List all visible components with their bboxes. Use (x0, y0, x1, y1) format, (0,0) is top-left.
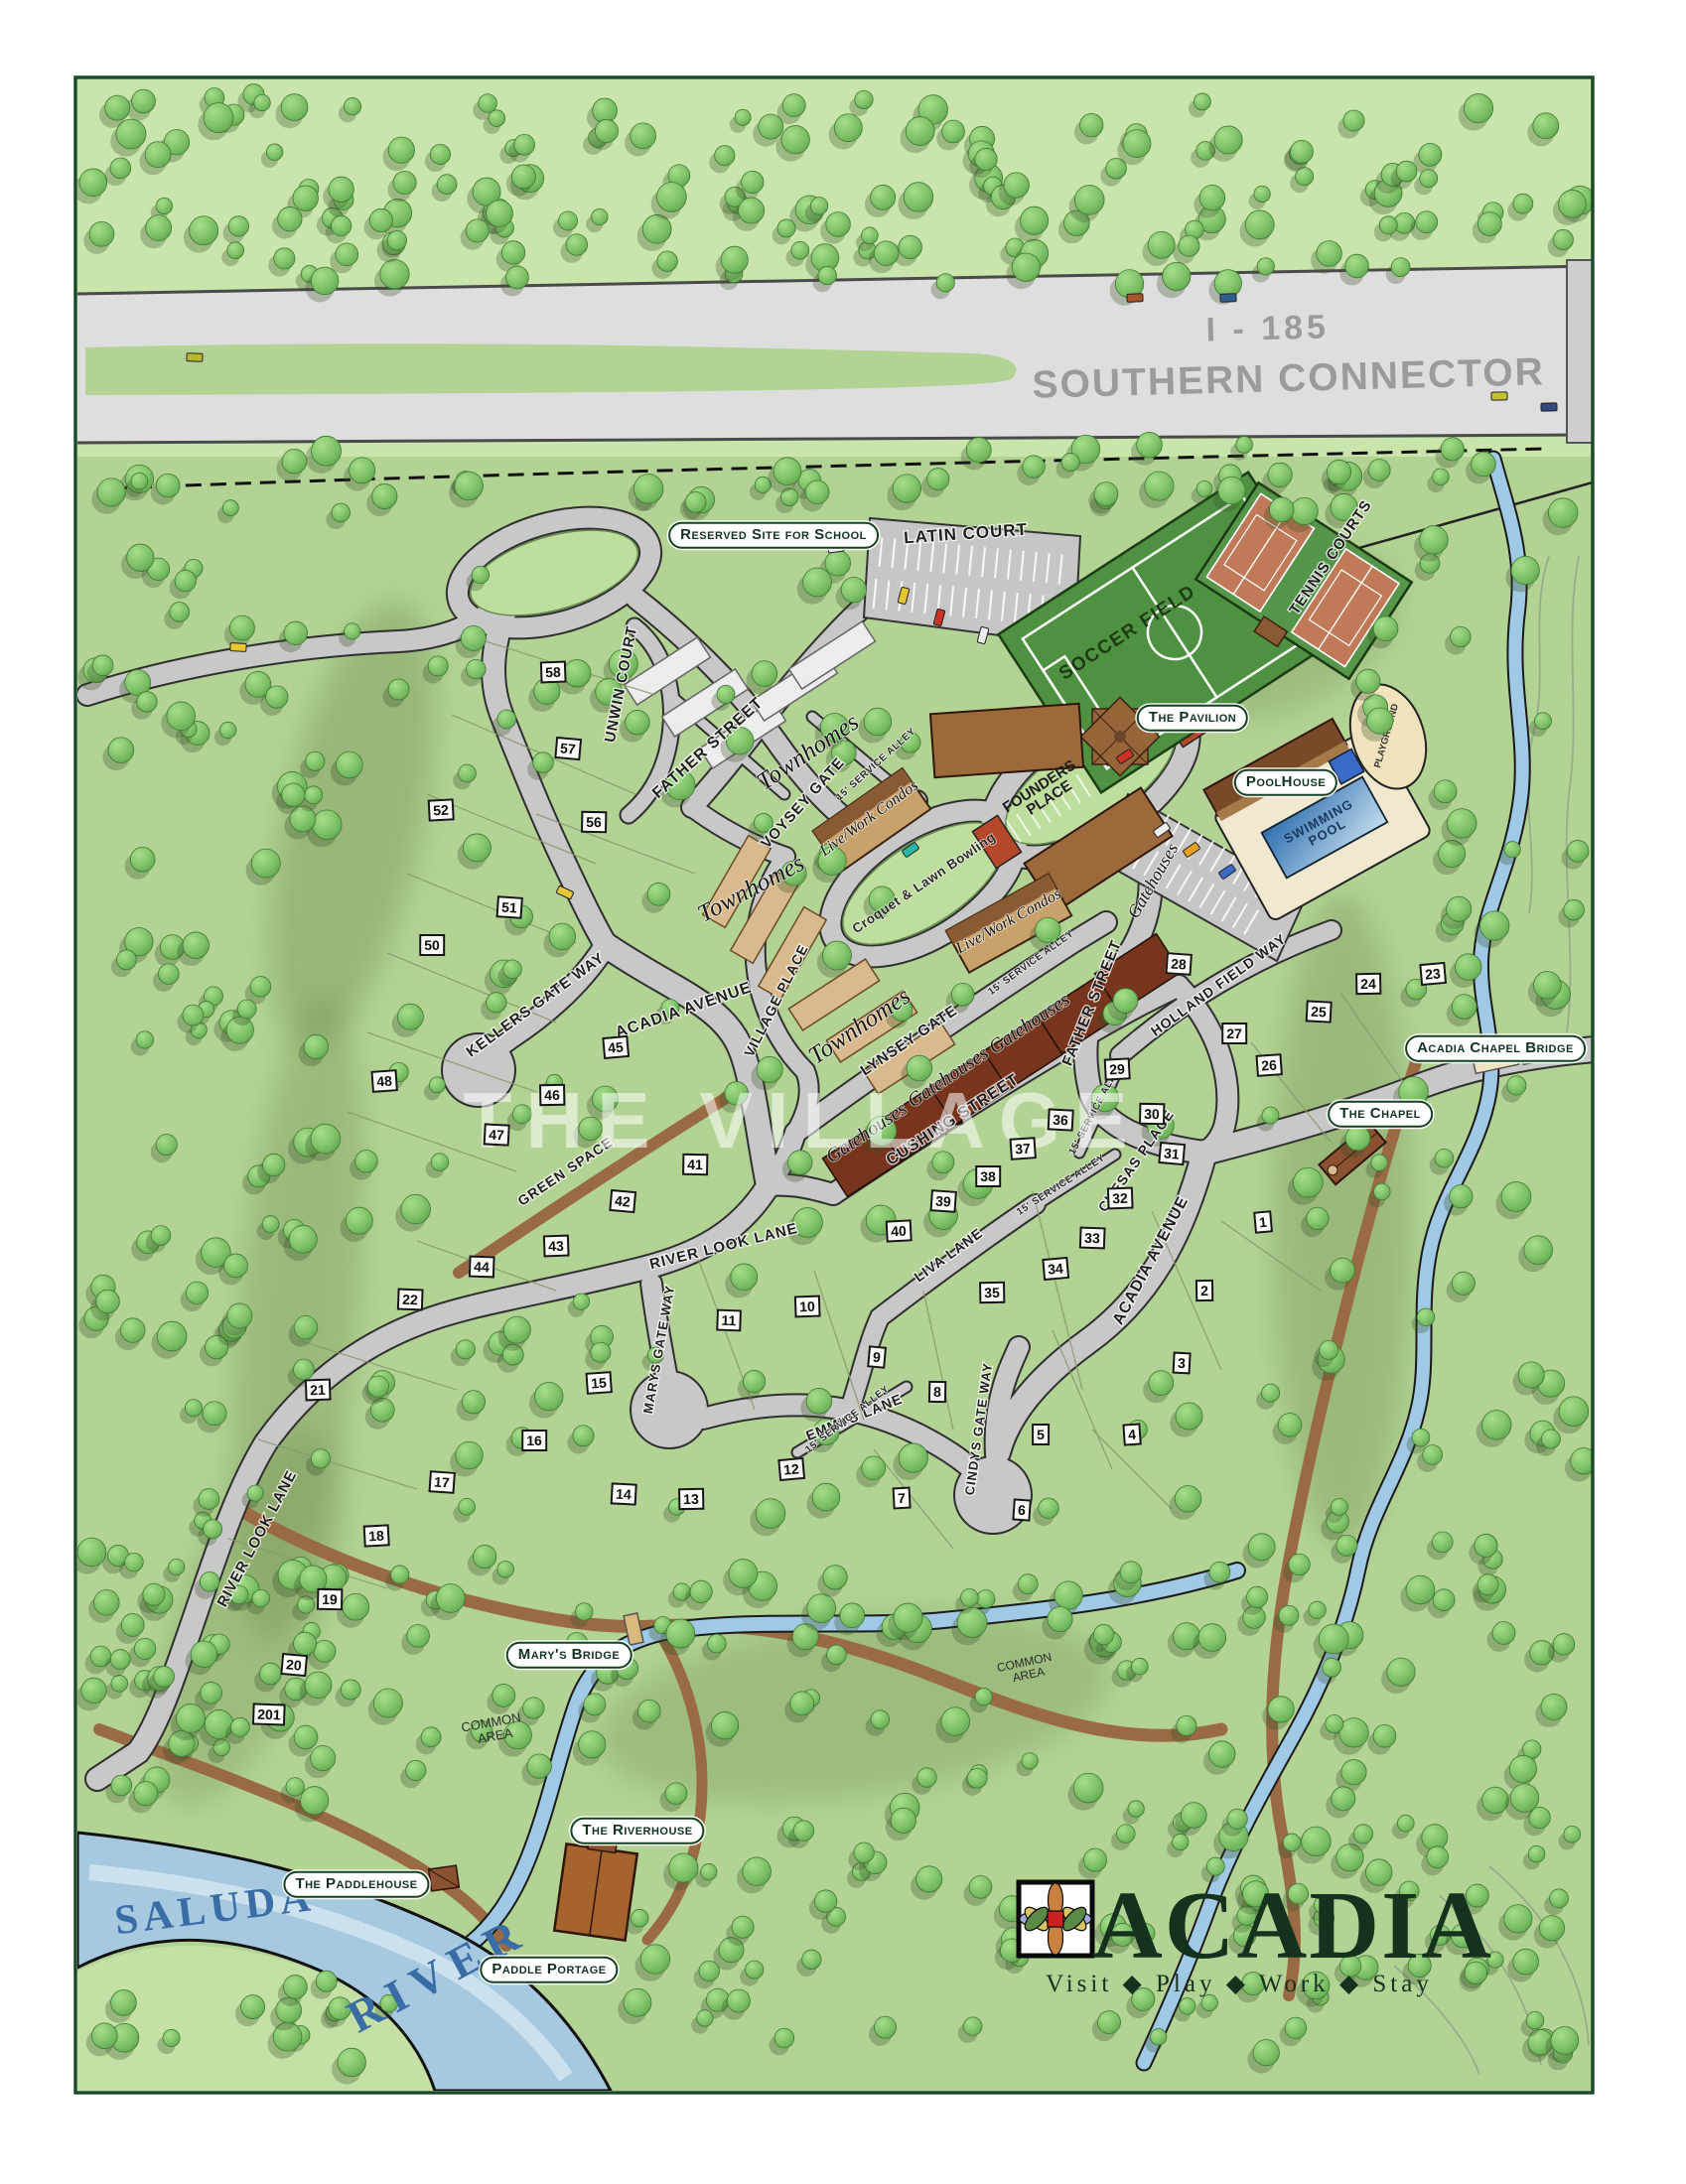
highway-overpass (1567, 260, 1593, 443)
lot-number-24: 24 (1355, 973, 1381, 995)
logo-wordmark: ACADIA (1092, 1872, 1493, 1979)
lot-number-3: 3 (1173, 1352, 1192, 1375)
pill-poolhouse: PoolHouse (1234, 769, 1337, 796)
acadia-flower-icon (1019, 1882, 1092, 1956)
lot-number-9: 9 (867, 1345, 887, 1368)
lot-number-51: 51 (495, 895, 522, 919)
lot-number-11: 11 (716, 1309, 742, 1332)
pill-the-pavilion: The Pavilion (1137, 705, 1248, 732)
lot-number-16: 16 (521, 1430, 547, 1451)
site-map-page: SOCCER FIELD SWIMMING POOL (0, 0, 1686, 2184)
pill-the-paddlehouse: The Paddlehouse (283, 1871, 429, 1898)
lot-number-28: 28 (1165, 952, 1192, 976)
lot-number-5: 5 (1032, 1424, 1050, 1445)
pill-acadia-chapel-bridge: Acadia Chapel Bridge (1405, 1035, 1586, 1062)
lot-number-32: 32 (1107, 1187, 1133, 1210)
lot-number-29: 29 (1104, 1057, 1131, 1080)
paddlehouse-building (429, 1865, 460, 1891)
lot-number-8: 8 (928, 1381, 946, 1403)
lot-number-37: 37 (1009, 1137, 1036, 1160)
lot-number-40: 40 (886, 1219, 913, 1242)
lot-number-22: 22 (397, 1289, 423, 1311)
lot-number-31: 31 (1158, 1142, 1185, 1165)
map-content: SOCCER FIELD SWIMMING POOL (71, 79, 1597, 2091)
lot-number-25: 25 (1306, 1000, 1333, 1023)
pill-reserved-site-for-school: Reserved Site for School (668, 522, 879, 549)
pill-the-riverhouse: The Riverhouse (570, 1818, 704, 1844)
lot-number-4: 4 (1122, 1423, 1141, 1445)
lot-number-36: 36 (1048, 1108, 1074, 1131)
lot-number-47: 47 (484, 1123, 510, 1146)
lot-number-6: 6 (1012, 1498, 1031, 1521)
lot-number-45: 45 (602, 1035, 629, 1059)
lot-number-35: 35 (979, 1282, 1005, 1303)
lot-number-1: 1 (1253, 1210, 1273, 1233)
lot-number-19: 19 (317, 1588, 343, 1610)
lot-number-38: 38 (975, 1165, 1001, 1187)
acadia-logo: ACADIA Visit ◆ Play ◆ Work ◆ Stay (1019, 1872, 1493, 1997)
lot-number-56: 56 (581, 811, 607, 833)
lot-number-18: 18 (363, 1524, 390, 1547)
highway-median (85, 343, 1017, 395)
logo-tagline: Visit ◆ Play ◆ Work ◆ Stay (1046, 1971, 1433, 1997)
lot-number-57: 57 (554, 737, 581, 760)
lot-number-41: 41 (682, 1154, 708, 1175)
lot-number-201: 201 (252, 1703, 286, 1725)
lot-number-33: 33 (1079, 1227, 1105, 1250)
lot-number-20: 20 (280, 1653, 307, 1677)
lot-number-34: 34 (1042, 1257, 1068, 1281)
lot-number-42: 42 (609, 1189, 635, 1213)
pill-paddle-portage: Paddle Portage (480, 1957, 618, 1983)
map-canvas: SOCCER FIELD SWIMMING POOL (0, 0, 1686, 2184)
lot-number-12: 12 (777, 1457, 804, 1481)
lot-number-10: 10 (794, 1296, 820, 1318)
lot-number-14: 14 (611, 1482, 637, 1505)
lot-number-30: 30 (1139, 1103, 1165, 1125)
lot-number-21: 21 (305, 1379, 331, 1402)
lot-number-50: 50 (419, 934, 445, 956)
lot-number-7: 7 (893, 1487, 912, 1510)
lot-number-2: 2 (1195, 1280, 1213, 1301)
lot-number-44: 44 (469, 1256, 494, 1279)
lot-number-52: 52 (428, 798, 455, 821)
lot-number-46: 46 (539, 1084, 565, 1106)
lot-number-48: 48 (370, 1069, 397, 1093)
lot-number-27: 27 (1221, 1023, 1247, 1044)
lot-number-39: 39 (929, 1189, 956, 1213)
watermark-the-village: THE VILLAGE (464, 1076, 1142, 1164)
lot-number-43: 43 (543, 1235, 569, 1258)
pill-marys-bridge: Mary's Bridge (506, 1642, 632, 1669)
pill-the-chapel: The Chapel (1328, 1101, 1433, 1128)
lot-number-15: 15 (585, 1371, 612, 1395)
lot-number-17: 17 (428, 1470, 455, 1494)
highway-label-i185: I - 185 (1205, 308, 1330, 348)
lot-number-58: 58 (540, 661, 566, 684)
lot-number-13: 13 (678, 1488, 704, 1510)
lot-number-23: 23 (1419, 962, 1446, 986)
lot-number-26: 26 (1255, 1053, 1282, 1077)
